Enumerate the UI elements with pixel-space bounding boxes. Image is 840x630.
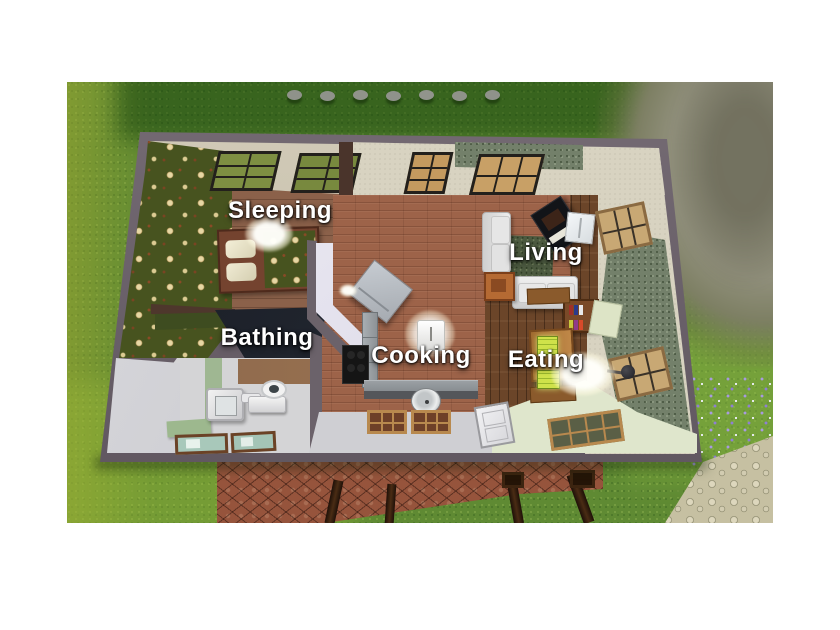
bedroom-window	[209, 151, 281, 191]
pendant-lamp-ball	[621, 365, 635, 379]
room-label-living: Living	[509, 239, 583, 267]
room-label-eating: Eating	[508, 346, 584, 374]
lamp-stem	[430, 327, 432, 341]
stone	[452, 91, 467, 101]
stone	[287, 90, 302, 100]
shower-unit[interactable]	[206, 388, 244, 421]
burner	[347, 364, 355, 372]
burner	[357, 351, 365, 359]
cabinet-handle	[578, 218, 582, 238]
window-mullion	[215, 176, 272, 178]
window-mullion	[322, 156, 332, 190]
window-mullion	[412, 167, 447, 169]
end-table[interactable]	[484, 272, 515, 301]
sink-drain	[425, 400, 429, 404]
sofa-cushion	[491, 216, 510, 244]
toilet-seat-hole	[269, 385, 279, 393]
window-glint	[241, 437, 253, 447]
burner	[357, 364, 365, 372]
toilet-bowl[interactable]	[261, 380, 287, 399]
shelf-side-panel	[588, 300, 622, 339]
piano-inner	[541, 208, 565, 231]
book	[579, 305, 583, 315]
window-glint	[186, 439, 200, 448]
beam-footing	[502, 472, 524, 488]
room-label-sleeping: Sleeping	[228, 197, 332, 225]
counter-seam	[363, 337, 377, 338]
window-mullion	[477, 175, 537, 177]
toilet-base[interactable]	[248, 396, 286, 413]
window-mullion	[409, 179, 444, 181]
window-mullion	[414, 422, 448, 424]
book	[574, 320, 578, 330]
beam-footing	[570, 470, 595, 488]
book	[569, 305, 573, 315]
kitchen-flat-window	[367, 410, 407, 434]
sofa-cushion	[491, 244, 510, 272]
window-mullion	[602, 223, 645, 234]
window-mullion	[425, 155, 435, 191]
bathroom-flat-window	[231, 431, 277, 453]
scene-viewport: Sleeping Bathing Cooking Living Eating	[67, 82, 773, 523]
kitchen-flat-window	[411, 410, 451, 434]
burner	[347, 351, 355, 359]
front-door-flat[interactable]	[474, 401, 516, 448]
window-mullion	[218, 165, 275, 167]
living-north-window	[469, 154, 545, 195]
stone	[386, 91, 401, 101]
rock-shading	[667, 82, 773, 292]
stone	[485, 90, 500, 100]
stove-cooktop[interactable]	[342, 345, 369, 384]
book	[579, 320, 583, 330]
bed-pillow	[226, 262, 257, 281]
room-label-bathing: Bathing	[221, 324, 314, 352]
dining-bench-top[interactable]	[527, 287, 571, 304]
room-label-cooking: Cooking	[371, 342, 471, 370]
door-panel	[482, 409, 506, 427]
stone	[320, 91, 335, 101]
shower-door	[215, 396, 237, 416]
window-mullion	[370, 422, 404, 424]
bathroom-flat-window	[175, 433, 229, 455]
game-screenshot: Sleeping Bathing Cooking Living Eating	[0, 0, 840, 630]
stone	[419, 90, 434, 100]
door-panel	[485, 425, 509, 443]
stone	[353, 90, 368, 100]
book	[574, 305, 578, 315]
stepping-stones	[287, 88, 517, 110]
wall-lamp	[339, 284, 357, 297]
window-mullion	[242, 154, 252, 188]
loveseat-vertical[interactable]	[482, 212, 511, 273]
table-inset	[491, 279, 506, 292]
